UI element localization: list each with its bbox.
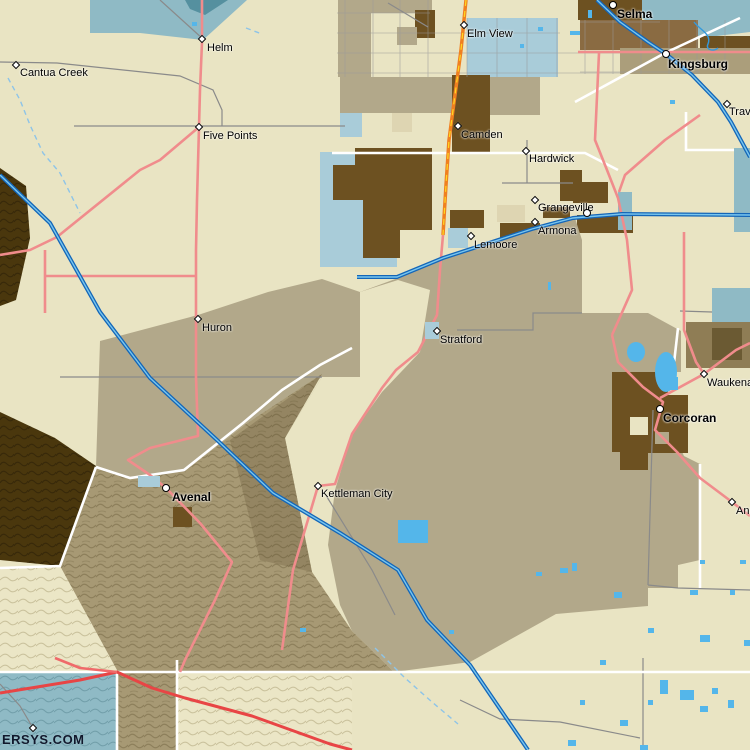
- town-label: Kingsburg: [668, 58, 728, 70]
- town-label: Lemoore: [474, 240, 517, 251]
- watermark: ERSYS.COM: [2, 732, 85, 747]
- town-label: Helm: [207, 43, 233, 54]
- town-label: Five Points: [203, 131, 257, 142]
- corcoran-lake: [627, 342, 645, 362]
- parcel-district: [467, 18, 558, 77]
- town-label: Avenal: [172, 491, 211, 503]
- town-label: Traver: [729, 107, 750, 118]
- town-label: Camden: [461, 130, 503, 141]
- town-label: Selma: [617, 8, 652, 20]
- town-label: Corcoran: [663, 412, 716, 424]
- town-label: Angiola: [736, 506, 750, 517]
- brown-parcel: [415, 10, 435, 38]
- map-graphics: [0, 0, 750, 750]
- town-label: Cantua Creek: [20, 68, 88, 79]
- town-label: Elm View: [467, 29, 513, 40]
- town-label: Stratford: [440, 335, 482, 346]
- town-label: Huron: [202, 323, 232, 334]
- town-label: Armona: [538, 226, 577, 237]
- kettleman-pond: [398, 520, 428, 543]
- town-marker: [609, 1, 617, 9]
- map: Selma Kingsburg Traver Helm Cantua Creek…: [0, 0, 750, 750]
- town-label: Waukena: [707, 378, 750, 389]
- town-label: Kettleman City: [321, 489, 393, 500]
- town-label: Hardwick: [529, 154, 574, 165]
- town-marker: [583, 209, 591, 217]
- town-marker: [162, 484, 170, 492]
